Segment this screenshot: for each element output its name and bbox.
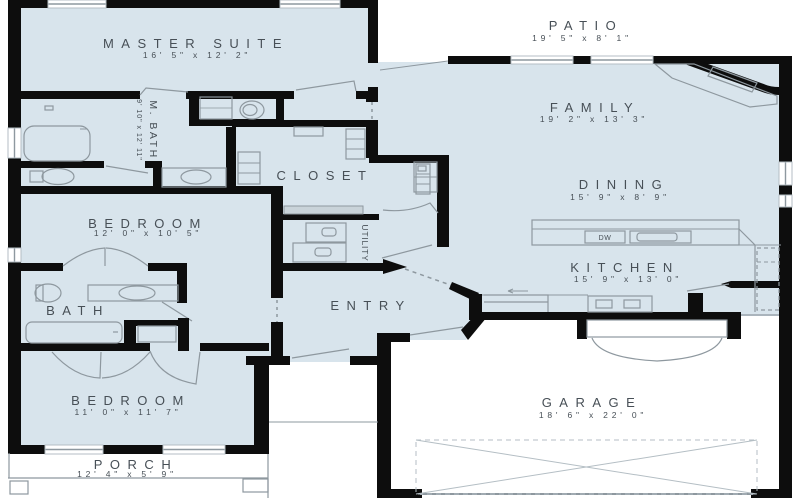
svg-text:UTILITY: UTILITY bbox=[360, 224, 370, 261]
svg-text:ENTRY: ENTRY bbox=[330, 298, 411, 313]
svg-text:FAMILY: FAMILY bbox=[550, 100, 640, 115]
svg-text:19' 5" x 8' 1": 19' 5" x 8' 1" bbox=[532, 33, 632, 43]
svg-text:12' 4" x 5' 9": 12' 4" x 5' 9" bbox=[77, 469, 177, 479]
svg-text:18' 6" x 22' 0": 18' 6" x 22' 0" bbox=[539, 410, 647, 420]
svg-text:15' 9" x 13' 0": 15' 9" x 13' 0" bbox=[574, 274, 682, 284]
svg-text:11' 0" x 11' 7": 11' 0" x 11' 7" bbox=[74, 407, 181, 417]
svg-text:12' 0" x 10' 5": 12' 0" x 10' 5" bbox=[94, 228, 202, 238]
svg-text:M. BATH: M. BATH bbox=[147, 100, 159, 159]
svg-text:DINING: DINING bbox=[579, 177, 670, 192]
svg-text:DW: DW bbox=[599, 235, 612, 242]
svg-text:GARAGE: GARAGE bbox=[542, 395, 643, 410]
svg-text:CLOSET: CLOSET bbox=[276, 168, 373, 183]
svg-text:BATH: BATH bbox=[46, 303, 110, 318]
svg-text:MASTER SUITE: MASTER SUITE bbox=[103, 36, 289, 51]
svg-text:KITCHEN: KITCHEN bbox=[570, 260, 680, 275]
svg-text:19' 2" x 13' 3": 19' 2" x 13' 3" bbox=[540, 114, 648, 124]
svg-text:PATIO: PATIO bbox=[549, 18, 624, 33]
svg-text:15' 9" x 8' 9": 15' 9" x 8' 9" bbox=[570, 192, 670, 202]
svg-text:9' 10" x 12' 11": 9' 10" x 12' 11" bbox=[135, 99, 142, 161]
svg-text:16' 5" x 12' 2": 16' 5" x 12' 2" bbox=[143, 50, 251, 60]
svg-text:BEDROOM: BEDROOM bbox=[71, 393, 191, 408]
